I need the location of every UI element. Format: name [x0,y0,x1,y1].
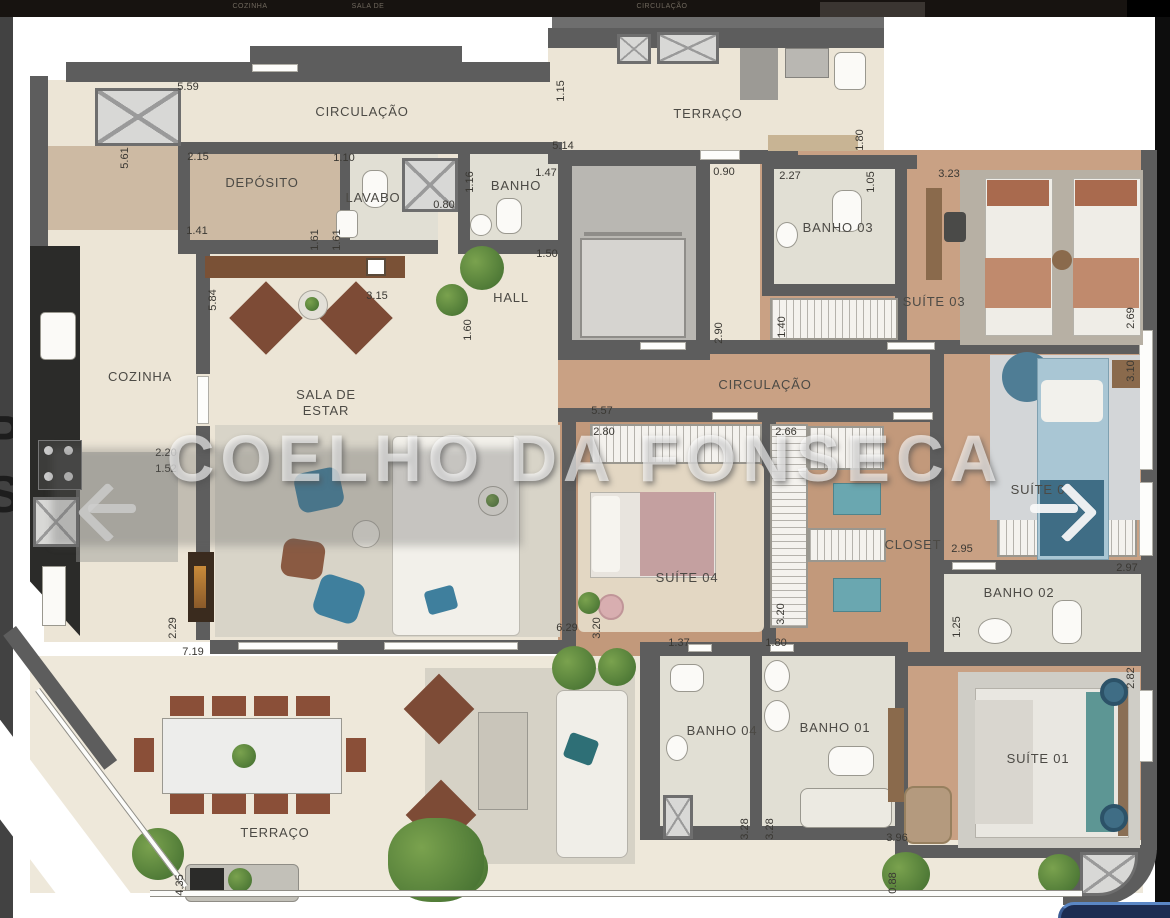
dimension-label: 1.05 [865,171,877,192]
room-label-terraco-superior: TERRAÇO [673,106,742,122]
room-label-banho-03: BANHO 03 [803,220,874,236]
dimension-label: 1.60 [462,319,474,340]
dimension-label: 3.96 [886,832,907,844]
dimension-label: 2.15 [187,151,208,163]
dimension-label: 3.28 [739,818,751,839]
dimension-label: 3.28 [764,818,776,839]
dimension-label: 1.15 [555,80,567,101]
dimension-label: 5.59 [177,81,198,93]
room-label-sala-de-estar: SALA DE ESTAR [296,387,356,420]
dimension-label: 0.88 [887,872,899,893]
dimension-label: 5.57 [591,405,612,417]
dimension-label: 1.16 [464,171,476,192]
dimension-label: 1.37 [668,637,689,649]
room-label-cozinha: COZINHA [108,369,172,385]
dimension-label: 3.20 [591,617,603,638]
dimension-label: 3.23 [938,168,959,180]
dimension-label: 1.40 [776,316,788,337]
dimension-label: 1.61 [309,229,321,250]
room-label-lavabo: LAVABO [346,190,401,206]
bottom-action-pill[interactable] [1058,902,1170,918]
watermark-text: COELHO DA FONSECA [105,420,1065,496]
room-label-hall: HALL [493,290,529,306]
dimension-label: 2.29 [167,617,179,638]
dimension-label: 0.90 [713,166,734,178]
prev-plan-button[interactable] [80,478,144,538]
room-label-suite-04: SUÍTE 04 [656,570,719,586]
dimension-label: 2.27 [779,170,800,182]
dimension-label: 2.97 [1116,562,1137,574]
room-label-banho-01: BANHO 01 [800,720,871,736]
dimension-label: 1.10 [333,152,354,164]
dimension-label: 5.61 [119,147,131,168]
dimension-label: 0.80 [433,199,454,211]
room-label-closet: CLOSET [885,537,942,553]
floorplan-viewer: COZINHASALA DECIRCULAÇÃO P S [0,0,1170,918]
dimension-label: 1.50 [536,248,557,260]
dimension-label: 7.19 [182,646,203,658]
dimension-label: 6.29 [556,622,577,634]
room-label-banho-social: BANHO [491,178,541,194]
dimension-label: 1.41 [186,225,207,237]
room-label-terraco: TERRAÇO [240,825,309,841]
dimension-label: 1.25 [951,616,963,637]
room-label-suite-03: SUÍTE 03 [903,294,966,310]
room-label-circulacao-top: CIRCULAÇÃO [315,104,408,120]
room-label-suite-01: SUÍTE 01 [1007,751,1070,767]
dimension-label: 3.10 [1125,360,1137,381]
dimension-label: 2.90 [713,322,725,343]
dimension-label: 4.35 [174,874,186,895]
room-label-deposito: DEPÓSITO [225,175,298,191]
dimension-label: 3.20 [775,603,787,624]
dimension-label: 1.61 [331,229,343,250]
dimension-label: 2.82 [1125,667,1137,688]
dimension-label: 5.14 [552,140,573,152]
dimension-label: 1.80 [765,637,786,649]
room-label-circulacao-mid: CIRCULAÇÃO [718,377,811,393]
dimension-label: 5.84 [207,289,219,310]
dimension-label: 3.15 [366,290,387,302]
dimension-label: 1.47 [535,167,556,179]
prev-arrow-head-icon [77,482,138,543]
room-label-banho-02: BANHO 02 [984,585,1055,601]
dimension-label: 2.69 [1125,307,1137,328]
next-plan-button[interactable] [1022,478,1086,538]
room-label-banho-04: BANHO 04 [687,723,758,739]
dimension-label: 1.80 [854,129,866,150]
dimension-label: 2.95 [951,543,972,555]
